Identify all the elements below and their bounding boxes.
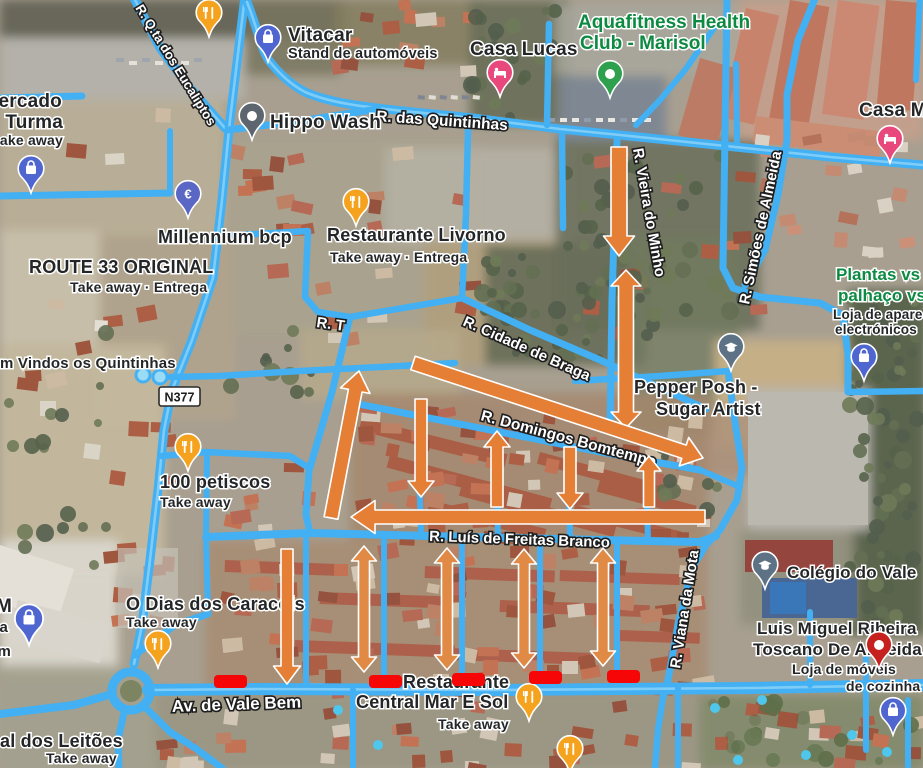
svg-text:Aquafitness Health: Aquafitness Health: [578, 12, 750, 33]
svg-text:Club - Marisol: Club - Marisol: [580, 33, 706, 54]
svg-text:de cozinha: de cozinha: [846, 678, 920, 694]
svg-text:ake away: ake away: [0, 132, 63, 148]
svg-text:Stand de automóveis: Stand de automóveis: [288, 46, 438, 62]
svg-text:Loja de apare: Loja de apare: [833, 307, 923, 322]
svg-text:Casa Lucas: Casa Lucas: [470, 39, 578, 60]
svg-text:a: a: [0, 619, 8, 636]
svg-text:O Dias dos Caracóis: O Dias dos Caracóis: [126, 594, 305, 614]
svg-text:M: M: [0, 596, 12, 617]
svg-text:Take away: Take away: [160, 494, 231, 510]
svg-text:Colégio do Vale: Colégio do Vale: [787, 563, 917, 582]
svg-text:N377: N377: [165, 391, 195, 405]
svg-text:al dos Leitões: al dos Leitões: [0, 731, 123, 751]
svg-text:100 petiscos: 100 petiscos: [160, 472, 270, 492]
svg-text:Take away · Entrega: Take away · Entrega: [70, 279, 207, 295]
svg-text:Take away: Take away: [438, 716, 509, 732]
svg-text:Hippo Wash: Hippo Wash: [270, 112, 381, 133]
svg-text:Restaurante Livorno: Restaurante Livorno: [327, 225, 506, 245]
svg-text:Turma: Turma: [5, 112, 63, 133]
svg-text:Toscano De Almeida: Toscano De Almeida: [753, 640, 922, 659]
svg-text:palhaço vs: palhaço vs: [838, 286, 923, 305]
svg-text:Take away · Entrega: Take away · Entrega: [330, 249, 467, 265]
svg-text:Vitacar: Vitacar: [288, 25, 353, 46]
svg-text:Take away: Take away: [46, 750, 117, 766]
svg-text:m: m: [0, 643, 11, 660]
svg-text:€: €: [184, 187, 191, 202]
svg-text:ROUTE 33 ORIGINAL: ROUTE 33 ORIGINAL: [29, 257, 213, 277]
svg-text:Central Mar E Sol: Central Mar E Sol: [356, 692, 508, 712]
svg-text:m Vindos os Quintinhas: m Vindos os Quintinhas: [0, 355, 176, 372]
svg-text:Sugar Artist: Sugar Artist: [656, 399, 761, 419]
svg-text:Luis Miguel Ribeira: Luis Miguel Ribeira: [757, 619, 917, 638]
svg-text:Pepper Posh -: Pepper Posh -: [634, 377, 758, 397]
svg-text:Take away: Take away: [126, 614, 197, 630]
svg-text:Casa M: Casa M: [859, 100, 923, 121]
svg-text:electrónicos: electrónicos: [835, 322, 917, 337]
svg-text:ercado: ercado: [0, 91, 62, 112]
svg-text:Millennium bcp: Millennium bcp: [158, 227, 292, 247]
svg-text:Plantas vs: Plantas vs: [836, 265, 920, 284]
